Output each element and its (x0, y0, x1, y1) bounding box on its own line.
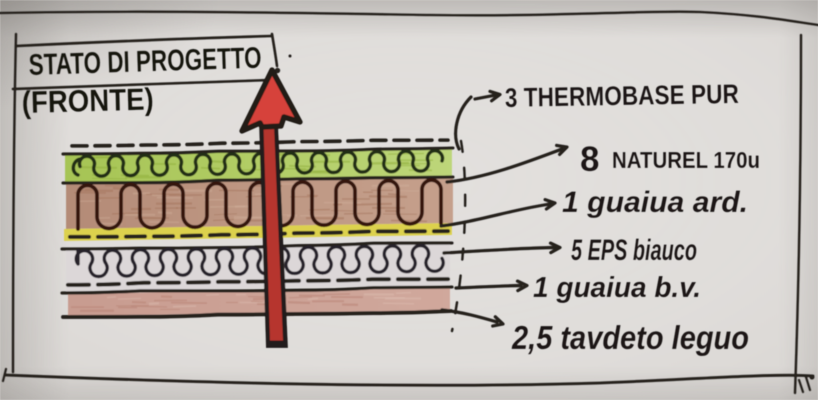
svg-text:NATUREL 170u: NATUREL 170u (612, 147, 760, 173)
svg-text:5 EPS biauco: 5 EPS biauco (571, 234, 697, 267)
svg-text:(FRONTE): (FRONTE) (21, 82, 154, 120)
svg-text:3 THERMOBASE PUR: 3 THERMOBASE PUR (505, 79, 739, 113)
svg-text:2,5 tavdeto leguo: 2,5 tavdeto leguo (511, 319, 749, 356)
svg-text:1 guaiua b.v.: 1 guaiua b.v. (533, 272, 701, 304)
svg-text:1 guaiua ard.: 1 guaiua ard. (562, 186, 748, 219)
svg-text:8: 8 (580, 140, 599, 179)
